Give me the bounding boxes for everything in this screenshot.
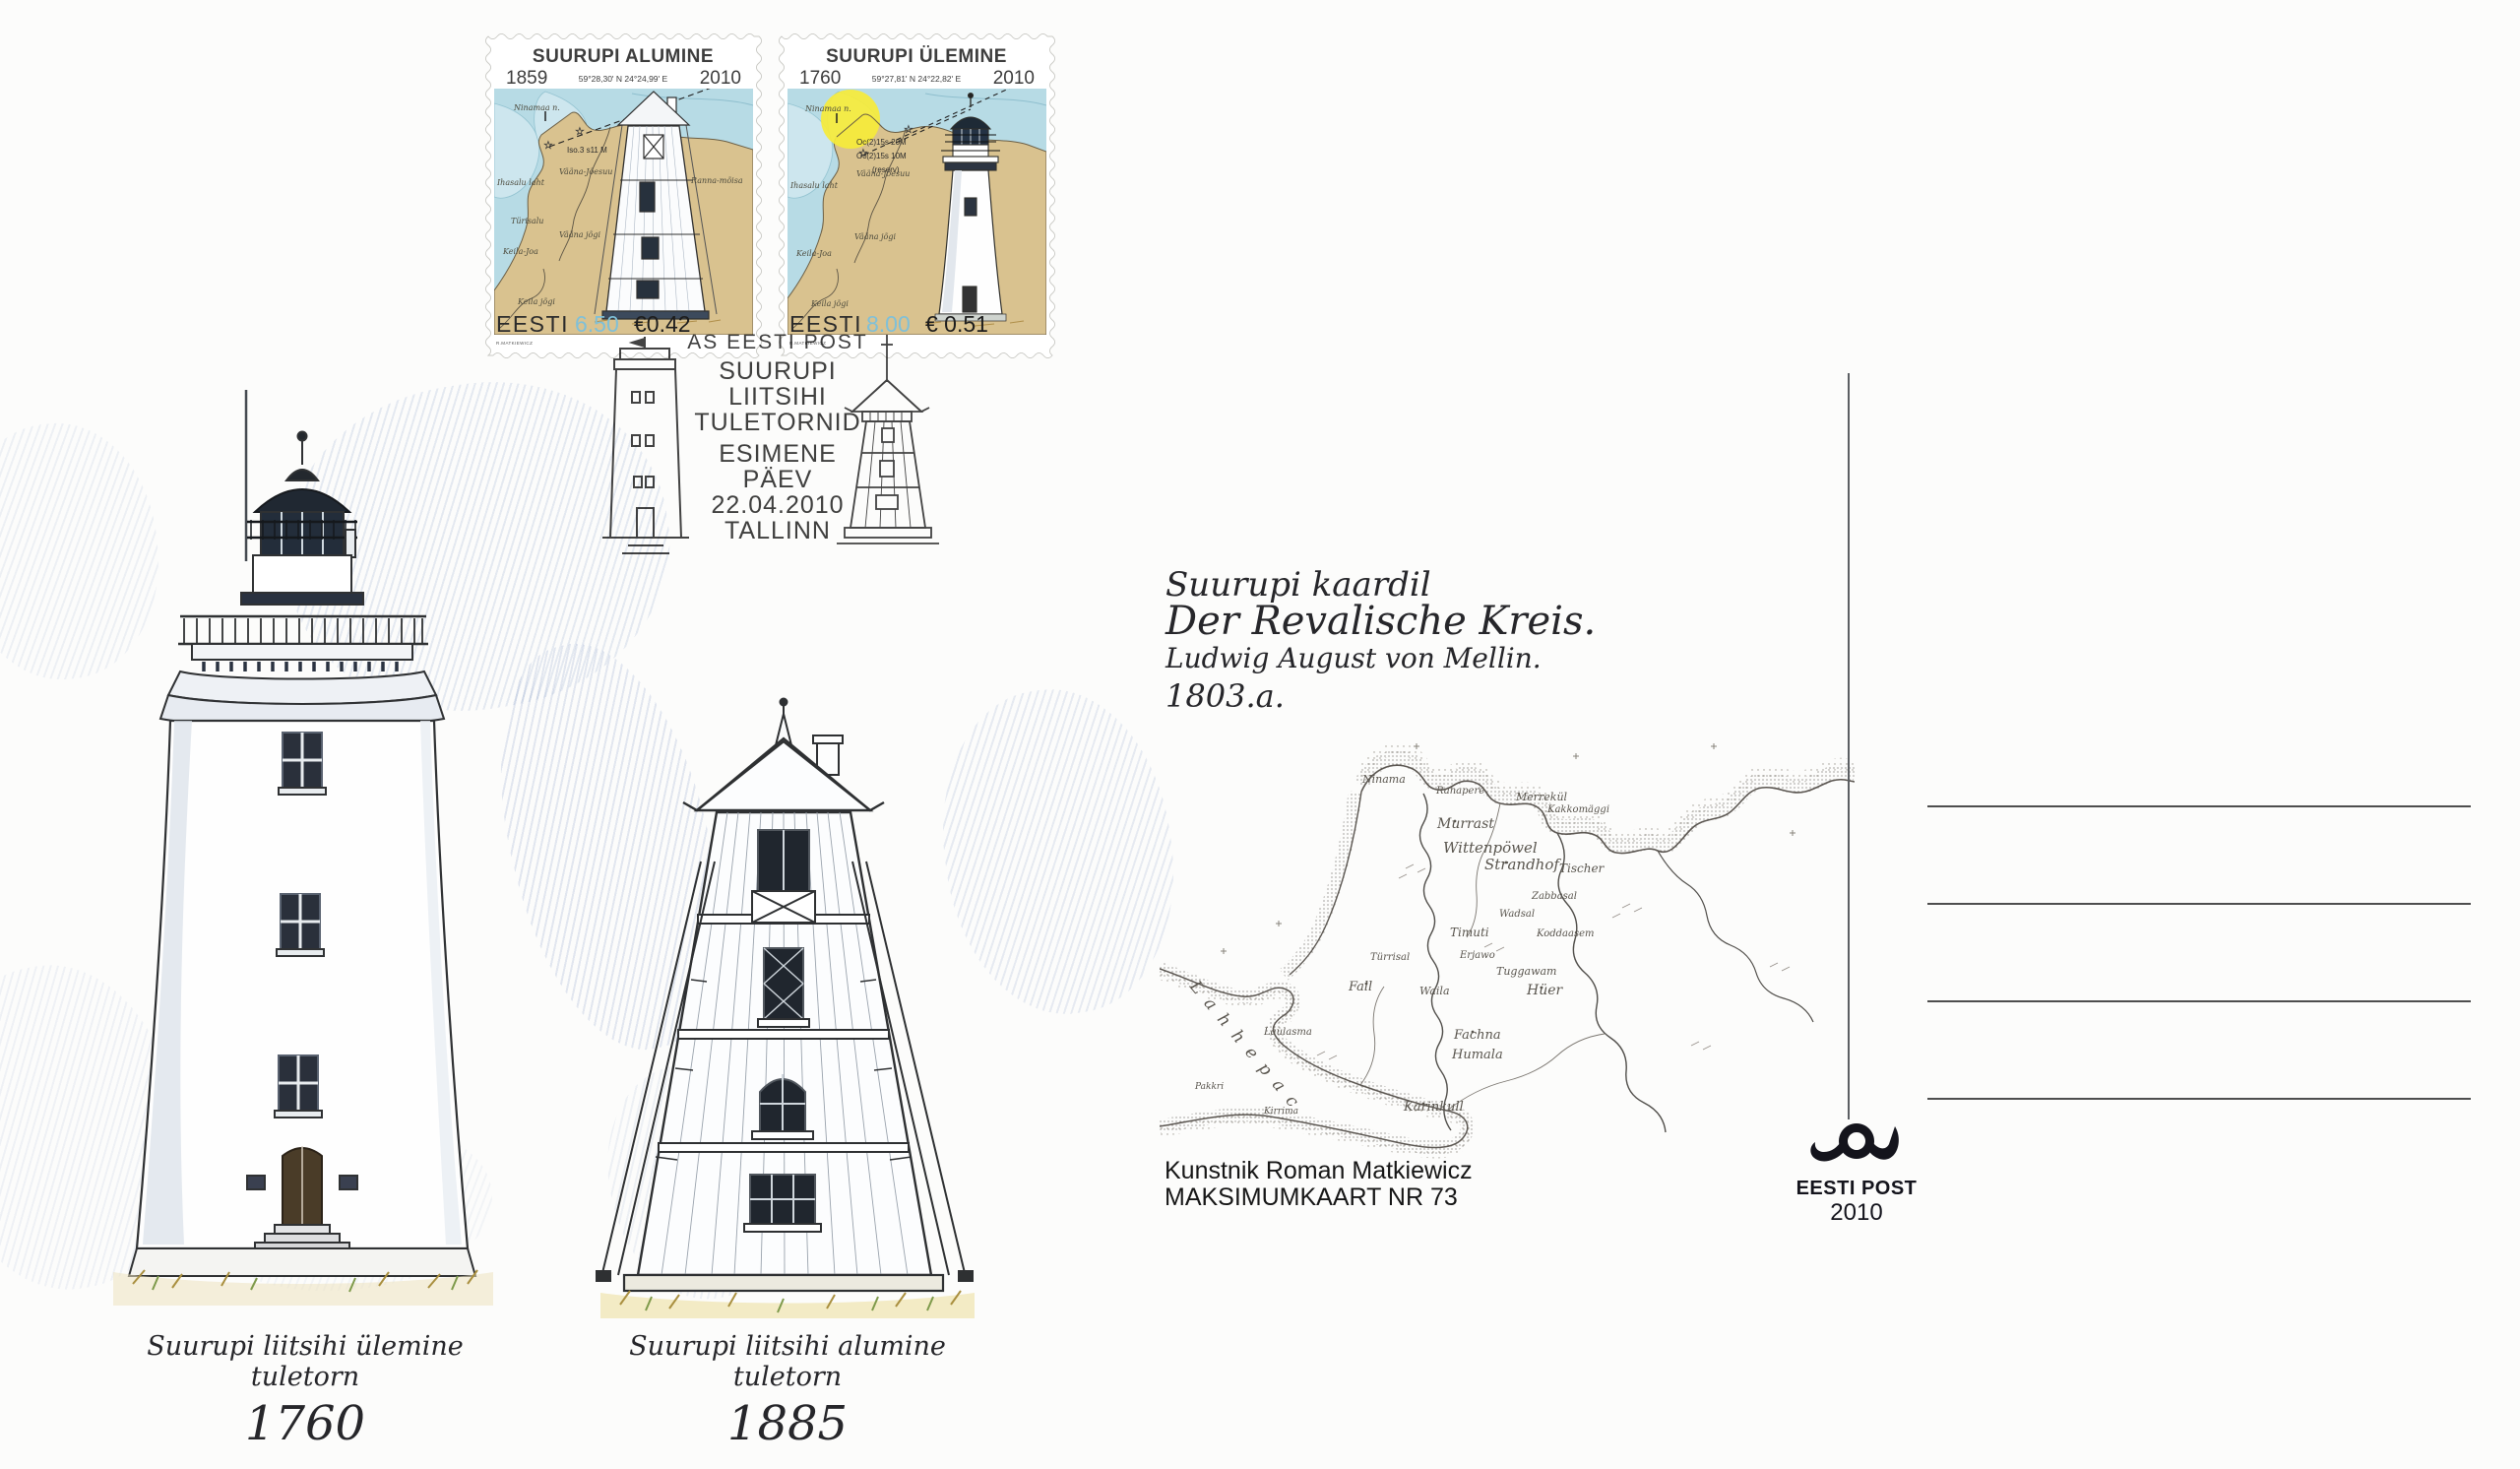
address-divider-line: [1848, 373, 1850, 1119]
old-map-label: Merrekül: [1515, 791, 1568, 803]
old-map-der-revalische-kreis: Lahhepac Ninama Ranapere Merrekül Kakkom…: [1160, 731, 1855, 1170]
caption-left: Suurupi liitsihi ülemine tuletorn 1760: [98, 1331, 512, 1451]
map-label: Keila jõgi: [517, 297, 555, 306]
map-label: Vääna-Jõesuu: [559, 167, 612, 176]
light-characteristic: Oc(2)15s 10M: [856, 152, 907, 160]
credits-series: MAKSIMUMKAART NR 73: [1165, 1184, 1473, 1211]
drawing-round-lighthouse: [54, 382, 517, 1317]
old-map-label: Tischer: [1559, 862, 1606, 875]
stamp-year-built: 1760: [799, 68, 841, 89]
stamp-suurupi-ulemine: ☆ ☆: [778, 32, 1056, 359]
map-label: Türisalu: [511, 217, 543, 225]
old-map-label: Kirrima: [1263, 1107, 1298, 1117]
map-label: Vääna jõgi: [854, 232, 896, 241]
light-characteristic: Oc(2)15s 20M: [856, 138, 907, 147]
map-label: Ninamaa n.: [513, 103, 560, 112]
postmark-lighthouse-right: [833, 335, 943, 563]
stamp-year-issued: 2010: [700, 68, 741, 89]
maximum-card-scan: ☆ ☆: [0, 0, 2520, 1469]
old-map-label: Hüer: [1526, 983, 1564, 998]
publisher-year: 2010: [1778, 1199, 1935, 1227]
stamp-coordinates: 59°27,81' N 24°22,82' E: [872, 74, 962, 84]
old-map-label: Erjawo: [1459, 950, 1495, 961]
stamp-year-issued: 2010: [993, 68, 1035, 89]
tower-window: [279, 733, 326, 795]
caption-right: Suurupi liitsihi alumine tuletorn 1885: [581, 1331, 994, 1451]
old-map-label: Tuggawam: [1496, 965, 1556, 978]
old-map-label: Laulasma: [1263, 1027, 1312, 1038]
old-map-label: Timuti: [1450, 926, 1489, 939]
map-note-line3: Ludwig August von Mellin.: [1165, 642, 1542, 674]
svg-text:☆: ☆: [575, 126, 585, 138]
map-label: Keila-Joa: [795, 249, 832, 258]
credits-artist: Kunstnik Roman Matkiewicz: [1165, 1158, 1473, 1184]
old-map-label: Wittenpöwel: [1443, 839, 1538, 857]
map-label: Keila-Joa: [502, 247, 538, 256]
stamp-value-euros: € 0.51: [925, 311, 988, 337]
old-map-label: Pakkri: [1194, 1082, 1224, 1092]
stamp-year-built: 1859: [506, 68, 547, 89]
stamp-coordinates: 59°28,30' N 24°24,99' E: [579, 74, 668, 84]
caption-right-title: Suurupi liitsihi alumine tuletorn: [581, 1331, 994, 1392]
old-map-label: Wadsal: [1499, 909, 1535, 920]
old-map-label: Waila: [1419, 985, 1450, 997]
drawing-wooden-lighthouse: [581, 684, 1093, 1324]
light-characteristic: Iso.3 s11 M: [567, 146, 607, 155]
stamp-map-art: ☆ ☆: [787, 82, 1046, 335]
old-map-label: Karinkull: [1403, 1100, 1464, 1115]
old-map-label: Fachna: [1453, 1028, 1501, 1043]
map-label: Vääna jõgi: [559, 230, 600, 239]
old-map-label: Ninama: [1361, 773, 1406, 786]
caption-left-title: Suurupi liitsihi ülemine tuletorn: [98, 1331, 512, 1392]
postmark-lighthouse-left: [589, 335, 705, 563]
stamp-engraver: R.MATKIEWICZ: [496, 341, 533, 346]
posthorn-icon: [1807, 1117, 1906, 1176]
old-map-label: Humala: [1451, 1048, 1503, 1062]
stamp-value-kroons: 6.50: [575, 311, 619, 337]
stamp-map-art: ☆ ☆: [494, 81, 753, 335]
address-line: [1927, 805, 2471, 807]
old-map-label: Kakkomäggi: [1546, 804, 1609, 815]
map-label: Ninamaa n.: [804, 104, 851, 113]
old-map-label: Murrast: [1436, 816, 1494, 832]
stamp-country: EESTI: [496, 311, 569, 337]
svg-text:☆: ☆: [904, 124, 913, 136]
map-label: Keila jõgi: [810, 299, 849, 308]
map-label: Ihasalu laht: [496, 178, 545, 187]
old-map-label: Türrisal: [1370, 952, 1410, 963]
old-map-label: Koddaasem: [1536, 928, 1594, 939]
caption-left-year: 1760: [98, 1396, 512, 1451]
caption-right-year: 1885: [581, 1396, 994, 1451]
tower-window: [744, 1175, 821, 1232]
address-line: [1927, 1000, 2471, 1002]
address-line: [1927, 903, 2471, 905]
map-note-line2: Der Revalische Kreis.: [1165, 599, 1596, 644]
map-note-line4: 1803.a.: [1165, 677, 1285, 715]
publisher-name: EESTI POST: [1778, 1178, 1935, 1200]
map-label: Vääna-Jõesuu: [856, 169, 910, 178]
svg-text:☆: ☆: [543, 140, 553, 152]
stamp-suurupi-alumine: ☆ ☆: [484, 32, 763, 359]
map-label: Ihasalu laht: [789, 181, 839, 190]
stamp-title: SUURUPI ÜLEMINE: [826, 46, 1007, 67]
tower-window: [758, 948, 809, 1027]
address-line: [1927, 1098, 2471, 1100]
old-map-label: Zabbasal: [1531, 891, 1577, 902]
tower-window: [275, 1055, 322, 1118]
tower-window: [277, 894, 324, 956]
tower-window: [752, 830, 815, 923]
old-map-label: Strandhof: [1484, 856, 1561, 873]
credits: Kunstnik Roman Matkiewicz MAKSIMUMKAART …: [1165, 1158, 1473, 1211]
stamp-title: SUURUPI ALUMINE: [533, 46, 714, 67]
old-map-label: Fall: [1348, 980, 1372, 994]
map-label: Ranna-mõisa: [690, 176, 743, 185]
old-map-label: Ranapere: [1435, 786, 1484, 797]
